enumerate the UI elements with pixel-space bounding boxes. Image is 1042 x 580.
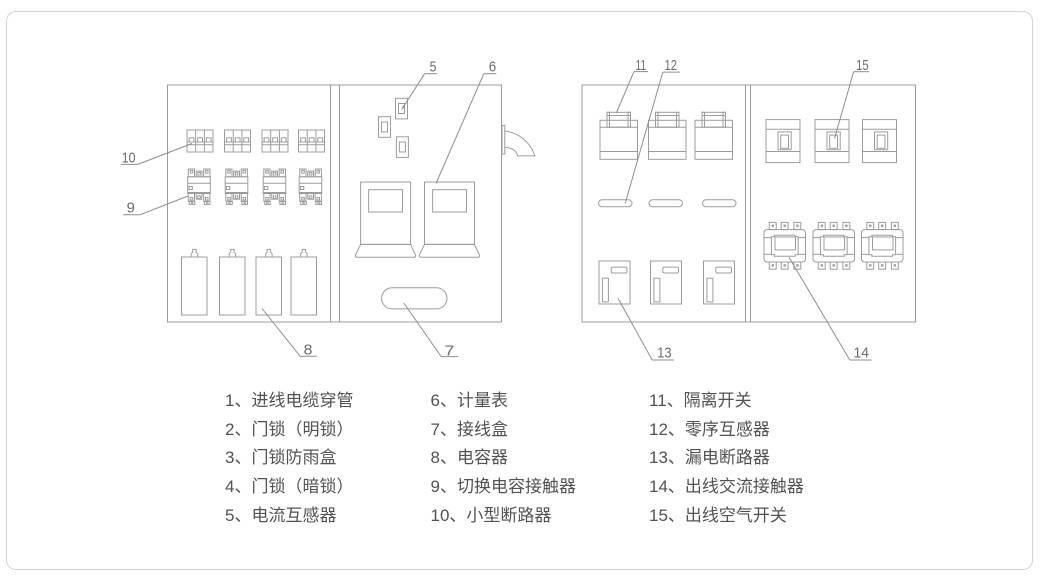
svg-text:10: 10: [122, 149, 136, 166]
svg-text:9: 9: [127, 200, 135, 217]
svg-text:5: 5: [430, 59, 437, 76]
svg-text:12: 12: [665, 57, 678, 74]
svg-text:6: 6: [489, 58, 496, 75]
svg-text:14: 14: [854, 345, 870, 362]
svg-text:13: 13: [657, 345, 672, 362]
